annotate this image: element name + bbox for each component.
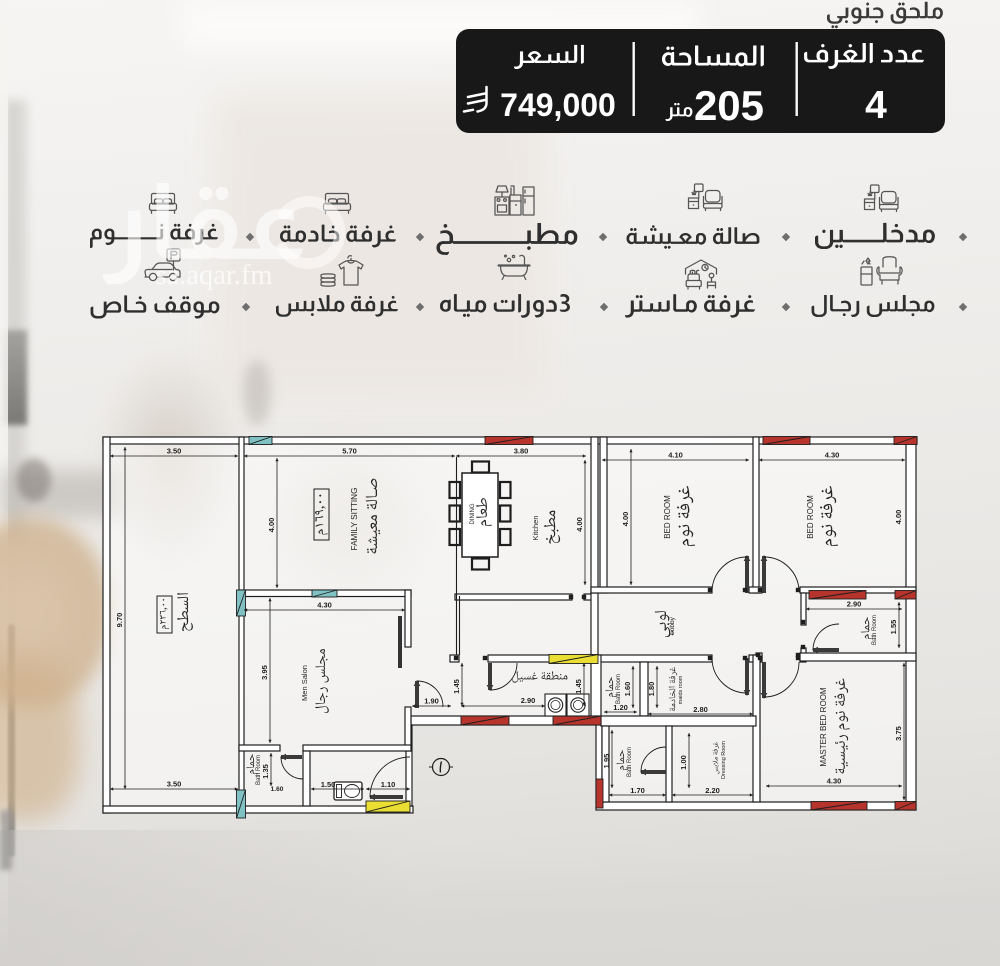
svg-text:1.60: 1.60	[623, 682, 632, 697]
svg-text:1.00: 1.00	[679, 755, 688, 770]
svg-text:1.90: 1.90	[424, 697, 439, 706]
svg-text:4.00: 4.00	[894, 510, 903, 525]
svg-text:3.75: 3.75	[894, 726, 903, 741]
svg-text:1.10: 1.10	[381, 780, 396, 789]
svg-text:3.50: 3.50	[167, 780, 182, 789]
svg-text:Dressing Room: Dressing Room	[721, 741, 727, 779]
svg-text:Bath Room: Bath Room	[872, 615, 878, 645]
svg-text:1.45: 1.45	[574, 679, 583, 694]
svg-text:1.95: 1.95	[602, 754, 611, 769]
svg-text:Kitchen: Kitchen	[531, 515, 540, 540]
svg-text:2.80: 2.80	[693, 705, 708, 714]
svg-text:Bath Room: Bath Room	[256, 755, 262, 785]
svg-text:4: 4	[865, 84, 887, 127]
svg-text:1.50: 1.50	[321, 780, 336, 789]
svg-text:sa.aqar.fm: sa.aqar.fm	[155, 260, 272, 291]
svg-text:Bath Room: Bath Room	[627, 747, 633, 777]
svg-text:5.70: 5.70	[342, 447, 357, 456]
svg-text:2.20: 2.20	[705, 786, 720, 795]
svg-text:1.70: 1.70	[630, 786, 645, 795]
svg-text:DINING: DINING	[470, 503, 476, 524]
svg-text:4.10: 4.10	[668, 451, 683, 460]
svg-text:2.90: 2.90	[847, 600, 862, 609]
svg-text:2.90: 2.90	[521, 696, 536, 705]
svg-text:4.00: 4.00	[267, 518, 276, 533]
svg-text:1.45: 1.45	[452, 679, 461, 694]
svg-text:1.55: 1.55	[889, 620, 898, 635]
svg-text:3.95: 3.95	[260, 665, 269, 680]
svg-text:4.30: 4.30	[827, 777, 842, 786]
svg-text:9.70: 9.70	[115, 613, 124, 628]
svg-text:205: 205	[694, 82, 764, 129]
svg-text:Men Salon: Men Salon	[300, 665, 309, 701]
svg-text:FAMILY SITTING: FAMILY SITTING	[350, 488, 359, 551]
svg-text:749,000: 749,000	[500, 87, 616, 123]
svg-text:1.80: 1.80	[647, 682, 656, 697]
svg-text:3.50: 3.50	[167, 447, 182, 456]
svg-text:Lobby: Lobby	[669, 616, 676, 634]
svg-text:4.00: 4.00	[575, 517, 584, 532]
svg-text:4.00: 4.00	[621, 512, 630, 527]
svg-text:maids room: maids room	[678, 675, 684, 704]
svg-text:4.30: 4.30	[825, 451, 840, 460]
svg-text:1.35: 1.35	[261, 764, 270, 779]
svg-text:3.80: 3.80	[514, 447, 529, 456]
svg-text:1.60: 1.60	[271, 786, 284, 793]
svg-text:4.30: 4.30	[317, 601, 332, 610]
svg-text:BED ROOM: BED ROOM	[663, 495, 672, 539]
svg-text:MASTER BED ROOM: MASTER BED ROOM	[819, 687, 828, 766]
svg-text:BED ROOM: BED ROOM	[806, 495, 815, 539]
svg-text:Bath Room: Bath Room	[616, 674, 622, 704]
